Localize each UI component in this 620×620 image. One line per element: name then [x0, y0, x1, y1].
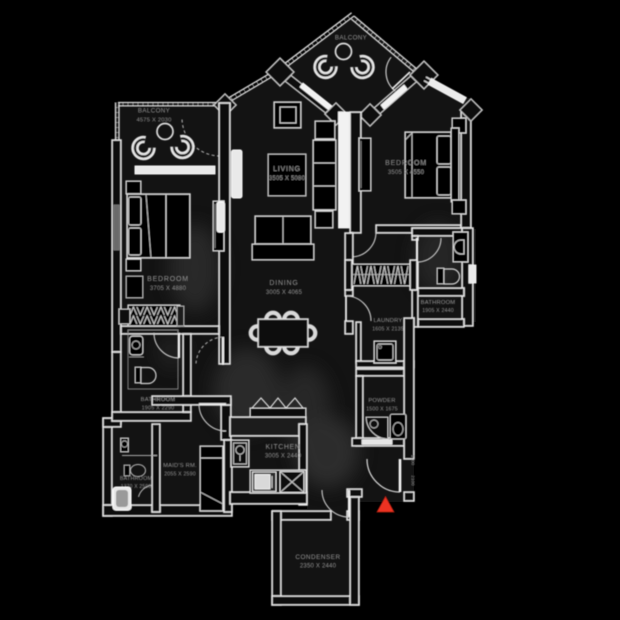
svg-text:BALCONY: BALCONY [335, 35, 367, 42]
svg-text:MAID'S RM.: MAID'S RM. [163, 463, 197, 469]
svg-text:3005 X 4065: 3005 X 4065 [266, 290, 303, 296]
svg-text:CONDENSER: CONDENSER [295, 554, 340, 561]
svg-text:BATHROOM: BATHROOM [421, 300, 456, 306]
svg-text:POWDER: POWDER [368, 398, 395, 404]
svg-text:DINING: DINING [269, 280, 298, 287]
svg-text:1000: 1000 [411, 455, 416, 466]
svg-text:3505 X 4550: 3505 X 4550 [388, 170, 425, 176]
svg-text:2350 X 2440: 2350 X 2440 [300, 564, 337, 570]
svg-text:KITCHEN: KITCHEN [266, 444, 301, 451]
svg-text:3005 X 2440: 3005 X 2440 [265, 454, 302, 460]
svg-text:1605 X 2135: 1605 X 2135 [372, 327, 404, 333]
svg-text:BATHROOM: BATHROOM [141, 397, 176, 403]
svg-text:1905 X 2440: 1905 X 2440 [422, 308, 454, 314]
svg-text:2100: 2100 [411, 475, 416, 486]
svg-text:1905 X 2290: 1905 X 2290 [142, 406, 175, 412]
svg-text:3505 X 5080: 3505 X 5080 [269, 176, 306, 182]
svg-text:LAUNDRY: LAUNDRY [374, 318, 403, 324]
svg-text:3705 X 4880: 3705 X 4880 [150, 286, 187, 292]
svg-text:BALCONY: BALCONY [138, 108, 170, 115]
svg-text:2055 X 2590: 2055 X 2590 [164, 472, 196, 478]
svg-text:BATHROOM: BATHROOM [120, 476, 153, 482]
svg-text:1500 X 1675: 1500 X 1675 [366, 407, 398, 413]
svg-text:LIVING: LIVING [273, 166, 301, 173]
svg-text:BEDROOM: BEDROOM [147, 276, 189, 283]
svg-text:BEDROOM: BEDROOM [385, 160, 427, 167]
svg-text:4575 X 2030: 4575 X 2030 [136, 118, 171, 124]
